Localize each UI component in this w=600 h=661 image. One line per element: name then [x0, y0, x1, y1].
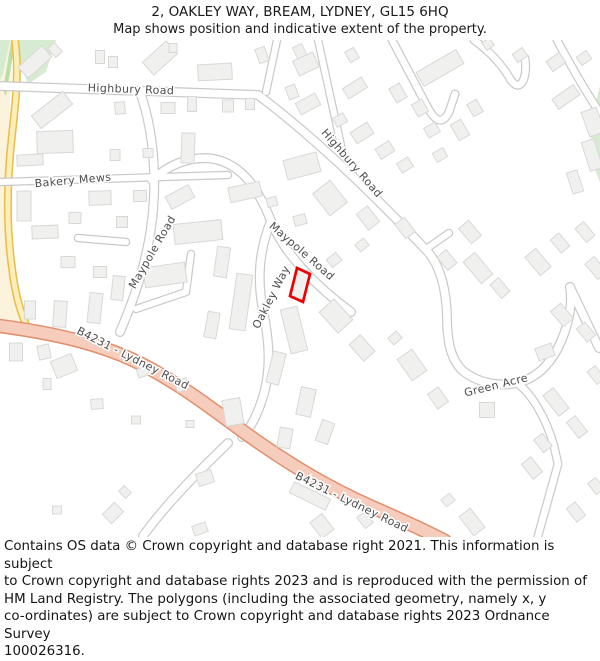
building: [87, 292, 103, 323]
building: [246, 99, 255, 110]
building: [441, 493, 455, 507]
building: [467, 99, 484, 117]
building: [416, 50, 464, 87]
building: [397, 157, 414, 173]
building: [450, 119, 469, 141]
road-label-bakery-mews: Bakery Mews: [34, 171, 112, 191]
building: [222, 398, 244, 427]
building: [10, 343, 23, 361]
building: [109, 57, 118, 68]
building: [110, 150, 120, 161]
building: [576, 50, 592, 65]
building: [350, 122, 374, 144]
building: [198, 63, 233, 81]
building: [566, 170, 583, 194]
building: [169, 44, 177, 53]
street-west-stub: [78, 238, 126, 242]
building: [111, 275, 125, 300]
building: [356, 206, 379, 230]
building: [575, 222, 595, 243]
road-labels: Highbury RoadHighbury RoadBakery MewsMay…: [34, 81, 529, 535]
street-green-acre: [447, 287, 571, 385]
building: [389, 83, 407, 103]
building: [102, 502, 123, 523]
street-highbury-road-diagonal: [258, 95, 447, 316]
building: [388, 331, 402, 345]
building: [213, 246, 230, 278]
building: [173, 220, 223, 245]
building: [133, 190, 146, 201]
building: [490, 278, 510, 299]
building: [581, 107, 600, 137]
building: [255, 46, 270, 64]
building: [37, 130, 74, 153]
building: [229, 273, 253, 331]
building: [37, 344, 52, 360]
building: [521, 457, 542, 479]
map-description-subtitle: Map shows position and indicative extent…: [0, 21, 600, 38]
street-casing-highbury-road-diagonal: [258, 95, 447, 316]
building: [567, 416, 588, 439]
building: [424, 122, 441, 138]
building: [89, 191, 111, 206]
building: [143, 149, 153, 158]
building: [588, 477, 600, 494]
building: [313, 180, 348, 216]
building: [345, 47, 360, 62]
building: [32, 225, 58, 239]
building: [296, 387, 316, 418]
building: [223, 100, 234, 112]
building: [459, 220, 482, 244]
building: [375, 141, 395, 160]
building: [550, 233, 569, 253]
property-map: Highbury RoadHighbury RoadBakery MewsMay…: [0, 40, 600, 537]
building: [161, 103, 175, 114]
building: [428, 387, 449, 409]
building: [17, 154, 44, 166]
building: [192, 522, 209, 536]
building: [543, 388, 569, 416]
building: [61, 257, 75, 268]
building: [25, 301, 36, 319]
building: [566, 502, 585, 522]
building: [283, 152, 321, 180]
copyright-notice: Contains OS data © Crown copyright and d…: [0, 537, 600, 661]
building: [315, 419, 335, 444]
building: [181, 133, 195, 163]
building: [397, 349, 427, 381]
building: [188, 97, 197, 112]
road-label-highbury-road-1: Highbury Road: [87, 81, 174, 97]
building: [91, 398, 104, 409]
buildings: [10, 40, 600, 537]
building: [355, 238, 369, 252]
building: [277, 427, 293, 449]
building: [117, 217, 128, 228]
building: [69, 213, 81, 224]
building: [459, 508, 485, 536]
building: [342, 77, 367, 99]
building: [53, 301, 68, 328]
building: [293, 214, 307, 227]
building: [132, 416, 141, 424]
building: [525, 248, 551, 275]
building: [204, 311, 220, 339]
building: [94, 267, 107, 278]
building: [266, 196, 278, 207]
building: [587, 366, 600, 385]
building: [432, 148, 447, 163]
building: [17, 191, 31, 221]
building: [50, 354, 77, 379]
building: [285, 84, 299, 100]
street-south-branch: [143, 443, 228, 536]
building: [186, 421, 194, 428]
property-address-title: 2, OAKLEY WAY, BREAM, LYDNEY, GL15 6HQ: [0, 3, 600, 21]
building: [552, 85, 580, 110]
map-header: 2, OAKLEY WAY, BREAM, LYDNEY, GL15 6HQ M…: [0, 0, 600, 40]
street-maypole-road-vertical: [120, 92, 154, 332]
building: [53, 506, 62, 514]
building: [31, 91, 72, 128]
building: [480, 403, 495, 418]
road-label-b4231-lydney-road-1: B4231 - Lydney Road: [75, 324, 191, 392]
building: [463, 252, 492, 283]
building: [310, 514, 334, 537]
building: [114, 102, 125, 115]
building: [280, 306, 307, 354]
building: [119, 486, 132, 499]
building: [96, 51, 105, 64]
building: [349, 335, 375, 361]
building: [43, 379, 51, 390]
building: [165, 185, 195, 210]
building: [585, 256, 600, 279]
